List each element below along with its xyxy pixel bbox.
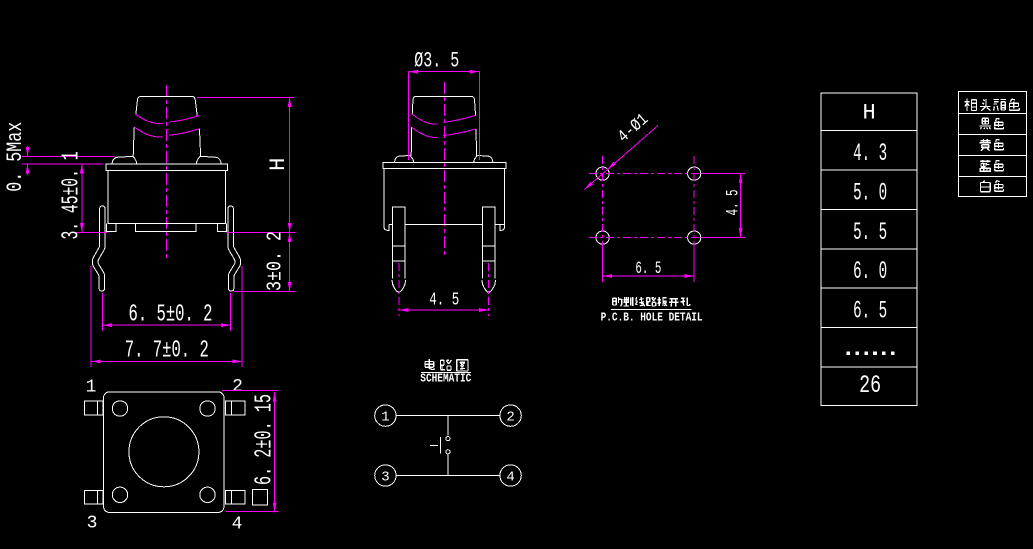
svg-text:3. 45±0. 1: 3. 45±0. 1: [59, 152, 86, 240]
svg-text:4. 5: 4. 5: [429, 291, 459, 311]
svg-text:1: 1: [86, 378, 97, 398]
svg-text:H: H: [266, 158, 291, 171]
svg-text:4: 4: [506, 470, 514, 486]
svg-text:7. 7±0. 2: 7. 7±0. 2: [125, 338, 209, 365]
svg-text:3±0. 2: 3±0. 2: [265, 231, 288, 291]
svg-text:6. 0: 6. 0: [853, 257, 887, 286]
svg-text:Ø3. 5: Ø3. 5: [414, 49, 459, 74]
svg-text:4. 5: 4. 5: [724, 190, 744, 216]
svg-text:SCHEMATIC: SCHEMATIC: [420, 372, 471, 386]
svg-text:0. 5Max: 0. 5Max: [3, 122, 28, 192]
svg-text:P.C.B. HOLE DETAIL: P.C.B. HOLE DETAIL: [601, 311, 703, 325]
svg-text:H: H: [862, 100, 875, 125]
svg-text:6. 2±0. 15: 6. 2±0. 15: [252, 394, 279, 485]
svg-text:5. 5: 5. 5: [853, 218, 887, 247]
svg-text:6. 5: 6. 5: [635, 259, 661, 279]
svg-text:3: 3: [381, 470, 389, 486]
svg-text:1: 1: [381, 410, 389, 426]
svg-text:6. 5: 6. 5: [853, 297, 887, 326]
svg-text:4: 4: [232, 515, 243, 535]
svg-text:6. 5±0. 2: 6. 5±0. 2: [129, 302, 213, 329]
svg-text:3: 3: [87, 514, 98, 534]
svg-text:2: 2: [506, 410, 514, 426]
svg-text:26: 26: [859, 371, 881, 400]
svg-text:2: 2: [232, 377, 243, 397]
svg-text:5. 0: 5. 0: [853, 178, 887, 207]
svg-text:4. 3: 4. 3: [853, 139, 887, 168]
